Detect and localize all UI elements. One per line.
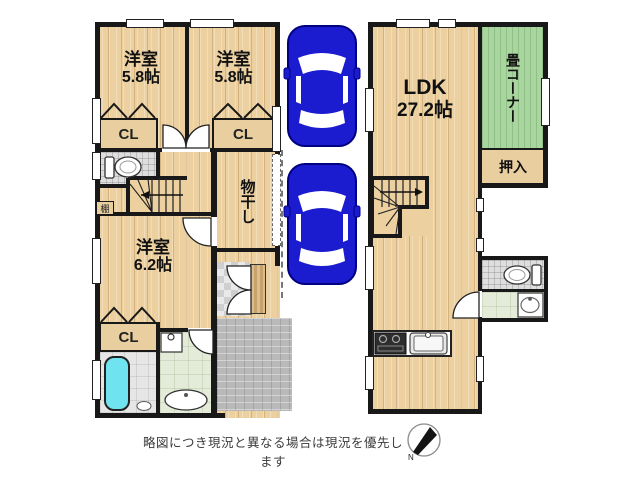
wall-f2-top xyxy=(368,22,548,27)
car1-icon xyxy=(284,26,360,146)
bathtub xyxy=(104,356,130,411)
ldk-label: LDK 27.2帖 xyxy=(372,76,478,121)
window-f2-right-lower xyxy=(476,356,484,382)
bedroom3-size: 6.2帖 xyxy=(97,257,209,275)
window-f1-right xyxy=(272,106,281,152)
closet1-box: CL xyxy=(99,118,158,150)
disclaimer-caption: 略図につき現況と異なる場合は現況を優先します xyxy=(138,432,408,470)
window-f1-left-1 xyxy=(92,98,101,144)
window-f2-top-1 xyxy=(396,19,430,28)
wall-toilet1-right xyxy=(156,152,160,188)
washroom2-floor xyxy=(482,292,544,318)
window-f2-mid-1 xyxy=(476,198,484,212)
compass-icon: N xyxy=(408,424,440,462)
wall-wing2-bottom xyxy=(478,318,548,322)
closet1-label: CL xyxy=(119,126,139,143)
bedroom1-name: 洋室 xyxy=(97,50,185,69)
wall-f2-bottom xyxy=(368,409,482,414)
bedroom1-label: 洋室 5.8帖 xyxy=(97,50,185,87)
window-f1-bath xyxy=(92,360,101,400)
closet3-label: CL xyxy=(119,329,139,346)
wall-f1-bottom xyxy=(95,413,225,418)
wall-oshiire-bottom xyxy=(478,183,548,188)
oshiire-label: 押入 xyxy=(499,157,527,177)
window-f1-top-1 xyxy=(126,19,164,28)
wall-bedroom-divider xyxy=(185,22,189,152)
bedroom2-name: 洋室 xyxy=(189,50,278,69)
bedroom3-label: 洋室 6.2帖 xyxy=(97,238,209,275)
window-f2-left-3 xyxy=(365,356,374,390)
closet3-box: CL xyxy=(99,322,158,352)
wall-toilet1-bottom xyxy=(95,184,160,188)
oshiire-box: 押入 xyxy=(480,148,546,186)
window-f1-top-2 xyxy=(190,19,234,28)
parking-boundary-line xyxy=(281,150,283,298)
bedroom2-size: 5.8帖 xyxy=(189,69,278,87)
window-f2-left-2 xyxy=(365,246,374,290)
closet2-label: CL xyxy=(233,126,253,143)
bedroom2-label: 洋室 5.8帖 xyxy=(189,50,278,87)
ldk-size: 27.2帖 xyxy=(372,100,478,121)
drying-room-label: 物干し xyxy=(217,156,277,246)
entrance-floor xyxy=(217,262,250,316)
bedroom1-size: 5.8帖 xyxy=(97,69,185,87)
window-f2-top-2 xyxy=(438,19,456,28)
entrance-step xyxy=(250,264,266,314)
ldk-name: LDK xyxy=(372,76,478,100)
shelf-box: 棚 xyxy=(96,201,114,215)
car2-icon xyxy=(284,164,360,284)
door-gap-bedrooms xyxy=(162,148,210,152)
floor-plan-canvas: CL CL CL 棚 押入 xyxy=(0,0,640,480)
toilet2-floor xyxy=(482,260,544,290)
wall-toilet2-washroom2-divider xyxy=(482,289,544,292)
window-f2-mid-2 xyxy=(476,238,484,252)
window-f1-toilet xyxy=(92,152,101,180)
shelf-label: 棚 xyxy=(100,202,109,215)
compass-n-label: N xyxy=(408,453,414,462)
bedroom3-name: 洋室 xyxy=(97,238,209,257)
wall-wing2-top xyxy=(478,256,548,260)
porch-tiles xyxy=(217,318,292,411)
drying-room-text: 物干し xyxy=(237,179,258,224)
tatami-corner-text: 畳コーナー xyxy=(503,53,523,123)
kitchen-counter xyxy=(372,330,452,357)
tatami-corner-label: 畳コーナー xyxy=(482,32,544,144)
closet2-box: CL xyxy=(212,118,274,150)
toilet1-floor xyxy=(100,152,156,184)
wall-wing2-right xyxy=(544,256,548,322)
door-gap-washroom2 xyxy=(478,291,482,317)
wall-drying-bottom xyxy=(211,248,280,252)
door-gap-washroom1 xyxy=(188,328,211,332)
washroom1-floor xyxy=(160,332,211,413)
